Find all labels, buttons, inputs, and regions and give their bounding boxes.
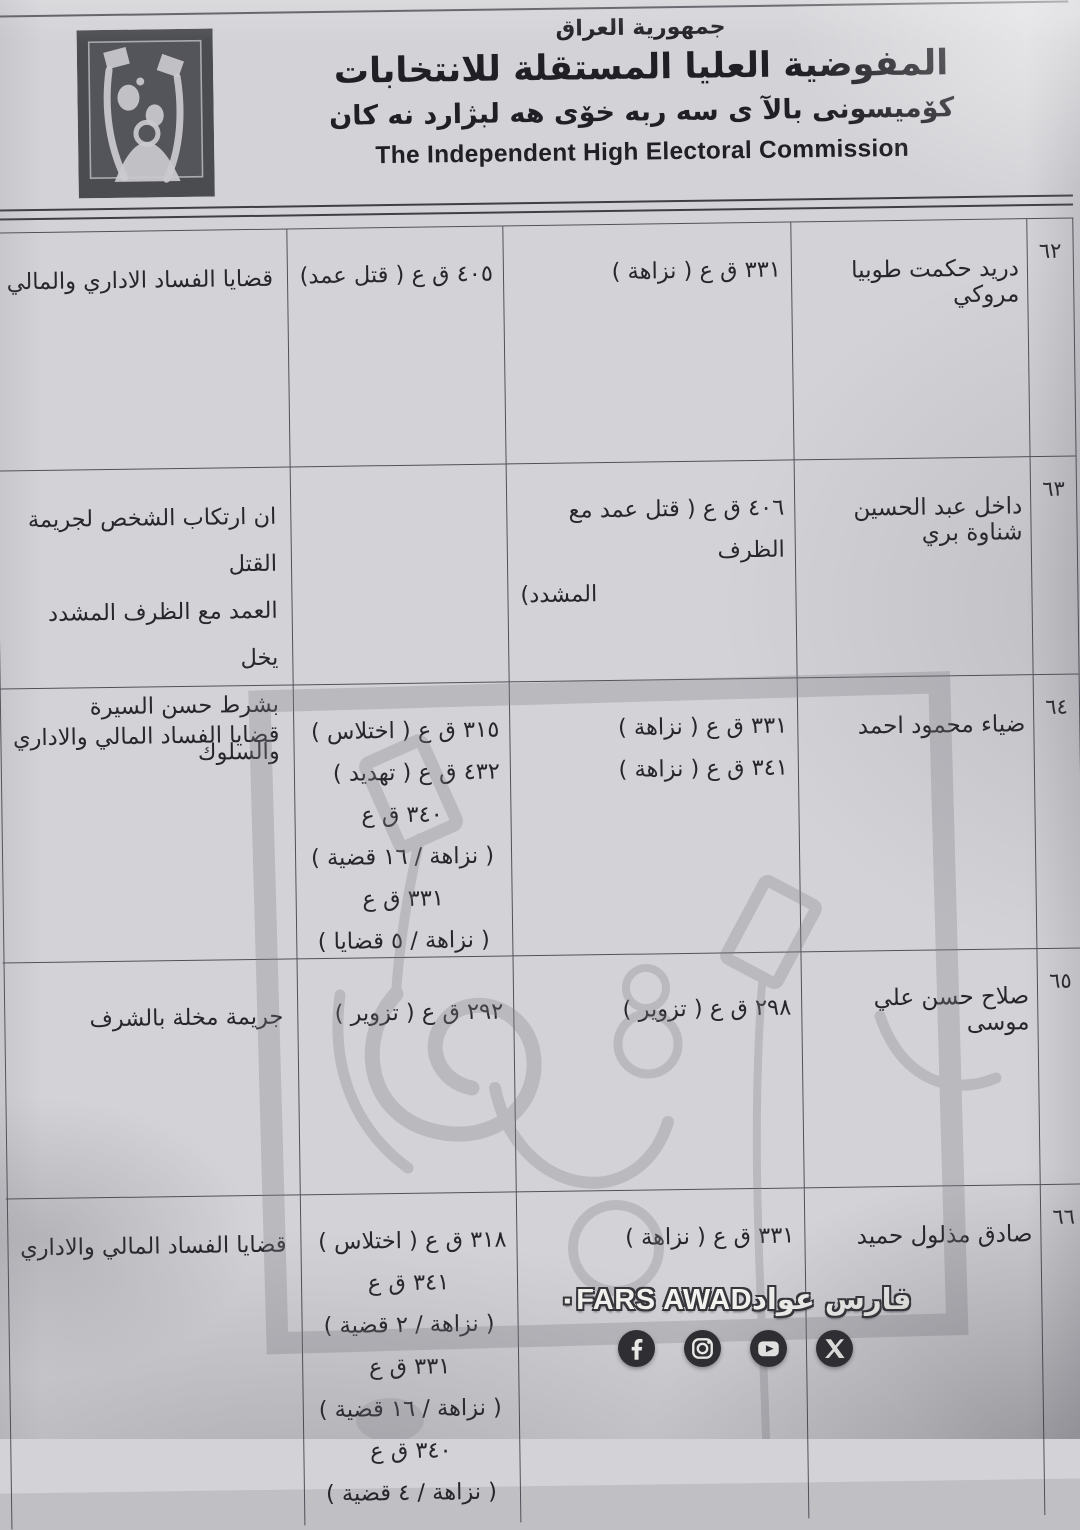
article-cell: ٤٠٦ ق ع ( قتل عمد مع الظرف المشدد) (506, 460, 797, 682)
article-line: ٤٠٥ ق ع ( قتل عمد) (296, 253, 494, 298)
article-cell: ٣٣١ ق ع ( نزاهة ) (502, 222, 793, 464)
notes-cell: قضايا الفساد المالي والاداري (0, 685, 297, 963)
notes-cell: قضايا الفساد المالي والاداري (6, 1195, 305, 1529)
article-line: ٣٣١ ق ع ( نزاهة ) (529, 1215, 795, 1261)
notes-cell: جريمة مخلة بالشرف (3, 959, 300, 1199)
candidates-exclusion-table: ٦٢ دريد حكمت طوبيا مروكي ٣٣١ ق ع ( نزاهة… (0, 218, 1080, 1530)
article-line: ٣١٨ ق ع ( اختلاس ) (309, 1219, 507, 1264)
charge-article-cell: ٣١٥ ق ع ( اختلاس ) ٤٣٢ ق ع ( تهديد ) ٣٤٠… (293, 682, 513, 959)
notes-cell: قضايا الفساد الاداري والمالي (0, 229, 290, 471)
note-line: قضايا الفساد المالي والاداري (9, 712, 280, 763)
note-line: قضايا الفساد الاداري والمالي (3, 256, 274, 307)
article-line: ( نزاهة / ١٦ قضية ) (304, 835, 502, 880)
row-number-cell: ٦٣ (1030, 456, 1079, 675)
row-number-cell: ٦٢ (1026, 219, 1075, 458)
charge-article-cell: ٤٠٥ ق ع ( قتل عمد) (286, 226, 505, 467)
article-line: ( نزاهة / ١٦ قضية ) (312, 1387, 510, 1432)
name-cell: دريد حكمت طوبيا مروكي (790, 219, 1029, 460)
article-line: ( نزاهة / ٢ قضية ) (310, 1303, 508, 1348)
article-line: ٣٤٠ ق ع (312, 1429, 510, 1474)
charge-article-cell: ٢٩٢ ق ع ( تزوير ) (297, 956, 516, 1195)
article-cell: ٣٣١ ق ع ( نزاهة ) ٣٤١ ق ع ( نزاهة ) (509, 678, 801, 956)
article-line: ٣٤١ ق ع ( نزاهة ) (523, 747, 789, 793)
article-line: ٣٣١ ق ع (304, 877, 502, 922)
row-number-cell: ٦٦ (1040, 1184, 1080, 1515)
note-line: قضايا الفساد المالي والاداري (16, 1222, 287, 1273)
charge-article-cell: ٣١٨ ق ع ( اختلاس ) ٣٤١ ق ع ( نزاهة / ٢ ق… (300, 1192, 521, 1525)
note-line: ان ارتكاب الشخص لجريمة القتل (6, 494, 277, 592)
paper-page: جمهورية العراق المفوضية العليا المستقلة … (0, 0, 1080, 1494)
note-line: جريمة مخلة بالشرف (13, 994, 284, 1045)
ihec-logo (77, 29, 215, 199)
article-line: ٢٩٨ ق ع ( تزوير ) (526, 987, 792, 1033)
article-line: ٣٤٠ ق ع (303, 793, 501, 838)
name-cell: صادق مذلول حميد (804, 1185, 1045, 1518)
row-number-cell: ٦٤ (1033, 674, 1080, 949)
article-line: ( نزاهة / ٤ قضية ) (313, 1470, 511, 1515)
name-cell: ضياء محمود احمد (797, 675, 1037, 952)
header-title-kurdish: كۆميسونى بالآ ى سه ربه خۆى هه لبژارد نه … (252, 90, 1032, 135)
article-cell: ٣٣١ ق ع ( نزاهة ) (516, 1188, 809, 1522)
article-line: ٤٠٦ ق ع ( قتل عمد مع الظرف (519, 487, 785, 575)
header-title-arabic: المفوضية العليا المستقلة للانتخابات (251, 41, 1032, 96)
article-line: ٣٣١ ق ع ( نزاهة ) (522, 705, 788, 751)
charge-article-cell (290, 464, 509, 685)
article-cell: ٢٩٨ ق ع ( تزوير ) (512, 952, 803, 1192)
article-line: ٢٩٢ ق ع ( تزوير ) (306, 991, 504, 1036)
article-line: ٣٣١ ق ع (311, 1345, 509, 1390)
article-line: المشدد) (520, 571, 786, 617)
article-line: ٣١٥ ق ع ( اختلاس ) (302, 709, 500, 754)
article-line: ٣٣١ ق ع ( نزاهة ) (516, 249, 782, 295)
note-line: العمد مع الظرف المشدد يخل (7, 588, 278, 686)
notes-cell: ان ارتكاب الشخص لجريمة القتل العمد مع ال… (0, 467, 293, 689)
document-header: جمهورية العراق المفوضية العليا المستقلة … (0, 3, 1073, 202)
name-cell: صلاح حسن علي موسى (800, 949, 1039, 1188)
article-line: ٣٤١ ق ع (310, 1261, 508, 1306)
article-line: ٤٣٢ ق ع ( تهديد ) (303, 751, 501, 796)
header-title-english: The Independent High Electoral Commissio… (252, 132, 1032, 174)
row-number-cell: ٦٥ (1036, 948, 1080, 1185)
name-cell: داخل عبد الحسين شناوة بري (794, 457, 1033, 678)
photographed-document: جمهورية العراق المفوضية العليا المستقلة … (0, 0, 1080, 1439)
